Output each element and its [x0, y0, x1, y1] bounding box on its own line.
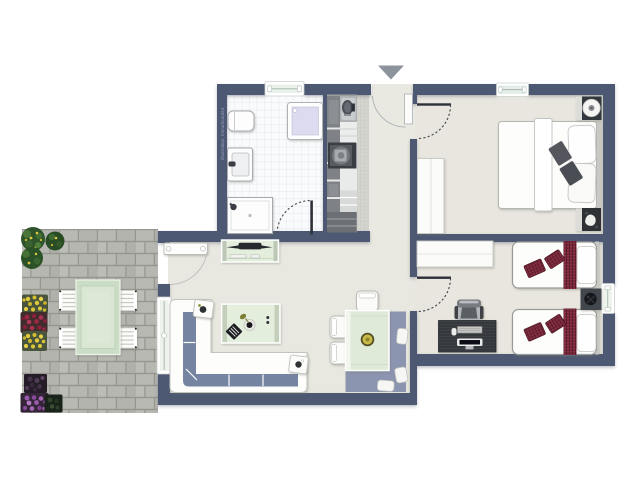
- svg-text:Illustration: ImmoScout24: Illustration: ImmoScout24: [220, 107, 225, 160]
